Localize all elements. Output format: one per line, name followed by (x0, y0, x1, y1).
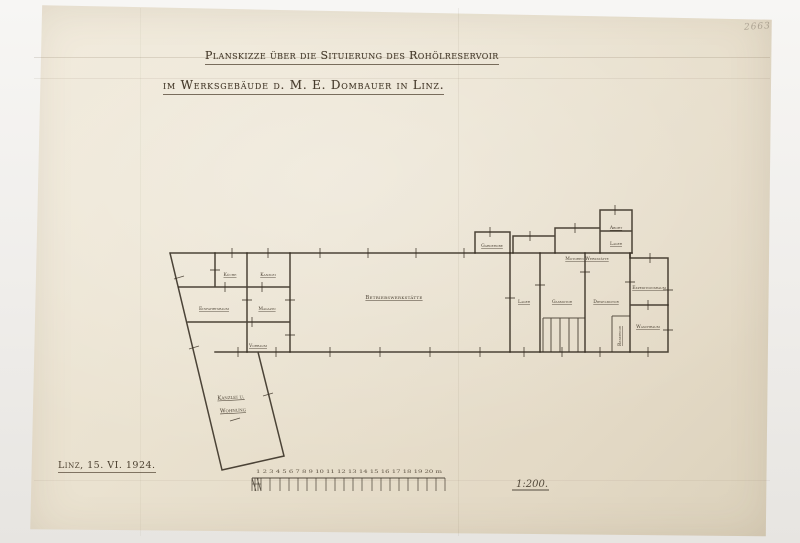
room-label-abort: Abort (609, 225, 622, 231)
room-label-magazin: Magazin (258, 306, 276, 312)
room-label-motoren-werkstaette: Motoren Werkstätte (565, 256, 609, 262)
room-label-lager-2: Lager (610, 241, 623, 247)
scale-bar-ticks (252, 478, 445, 491)
place-date-label: Linz, 15. VI. 1924. (58, 460, 156, 473)
stalls-and-reservoir-walls (543, 316, 630, 352)
room-label-vorraum: Vorraum (248, 343, 267, 349)
room-label-kueche: Küche (224, 272, 237, 278)
scale-ratio-label: 1:200. (516, 479, 548, 490)
scale-bar: 1 2 3 4 5 6 7 8 9 10 11 12 13 14 15 16 1… (252, 469, 549, 491)
wing-label-line1: Kanzlei u. (217, 394, 245, 401)
room-label-garderobe: Garderobe (481, 243, 503, 249)
dimension-ticks (174, 205, 673, 421)
wing-label-line2: Wohnung (220, 407, 246, 414)
room-label-waschraum: Waschraum (636, 324, 660, 330)
room-label-kanzlei: Kanzlei (260, 272, 276, 278)
room-label-expeditionsraum: Expeditionsraum (632, 285, 666, 291)
building-outer-walls (170, 253, 668, 470)
scanned-plan-sheet: Planskizze über die Situierung des Rohöl… (0, 0, 800, 543)
room-label-gasmotor: Gasmotor (552, 299, 573, 305)
room-label-dieselmotor: Dieselmotor (593, 299, 619, 305)
room-label-lager: Lager (518, 299, 531, 305)
room-label-reservoir: Reservoir (617, 325, 623, 346)
room-label-einfahrtsraum: Einfahrtsraum (199, 306, 229, 312)
scale-bar-numbers: 1 2 3 4 5 6 7 8 9 10 11 12 13 14 15 16 1… (256, 469, 442, 474)
room-label-betriebswerkstaette: Betriebswerkstätte (365, 295, 422, 301)
